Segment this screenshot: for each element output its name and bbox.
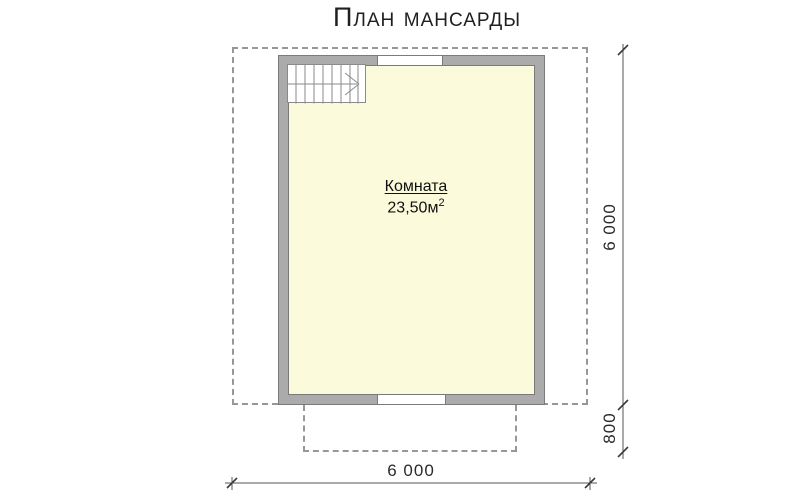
- room-area-sup: 2: [438, 197, 444, 209]
- page-title: План мансарды: [333, 2, 521, 33]
- stairs-icon: [287, 64, 367, 104]
- dimension-right-height: 6 000: [600, 203, 620, 251]
- room-area-value: 23,50м: [387, 199, 438, 216]
- dimension-porch-depth: 800: [600, 412, 620, 443]
- porch-overhang-outline: [303, 405, 517, 452]
- window-bottom: [377, 394, 446, 405]
- room-name: Комната: [385, 177, 448, 197]
- room-label: Комната 23,50м2: [385, 177, 448, 218]
- room-area: 23,50м2: [385, 197, 448, 218]
- window-top: [377, 55, 443, 66]
- room-floor: [288, 65, 535, 395]
- floor-plan-canvas: План мансарды: [0, 0, 795, 496]
- dimension-bottom-width: 6 000: [387, 461, 435, 481]
